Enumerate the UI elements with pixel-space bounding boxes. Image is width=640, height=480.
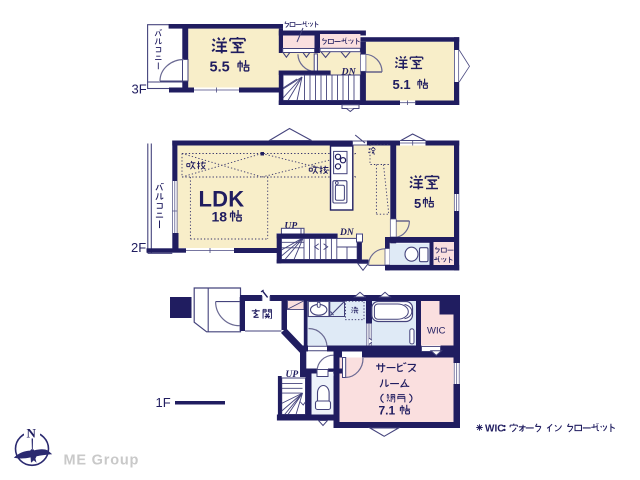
svg-text:2F: 2F: [131, 240, 146, 255]
svg-text:DN: DN: [341, 66, 357, 77]
svg-text:3F: 3F: [132, 81, 147, 96]
svg-text:N: N: [27, 426, 37, 441]
svg-text:1F: 1F: [156, 395, 171, 410]
svg-text:ME Group: ME Group: [64, 453, 140, 469]
svg-text:5.1: 5.1: [393, 77, 411, 92]
svg-text:18: 18: [212, 209, 228, 225]
svg-text:5.5: 5.5: [210, 60, 230, 76]
svg-text:UP: UP: [285, 222, 298, 232]
svg-text:5: 5: [414, 196, 421, 211]
svg-text:7.1: 7.1: [379, 404, 396, 418]
svg-text:WIC: WIC: [427, 326, 446, 337]
svg-text:WIC: WIC: [485, 424, 504, 435]
svg-text:UP: UP: [286, 370, 299, 380]
svg-text:DN: DN: [339, 228, 355, 238]
